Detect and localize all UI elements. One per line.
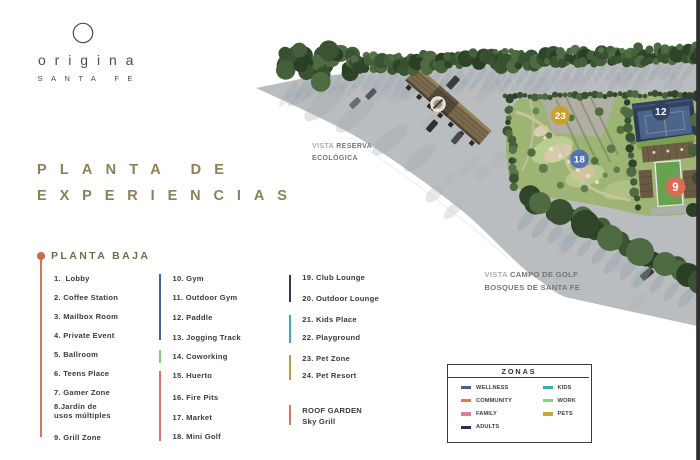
svg-text:9: 9 — [672, 182, 678, 194]
svg-text:23: 23 — [555, 111, 566, 122]
svg-text:18: 18 — [574, 155, 586, 166]
svg-text:12: 12 — [655, 107, 667, 118]
